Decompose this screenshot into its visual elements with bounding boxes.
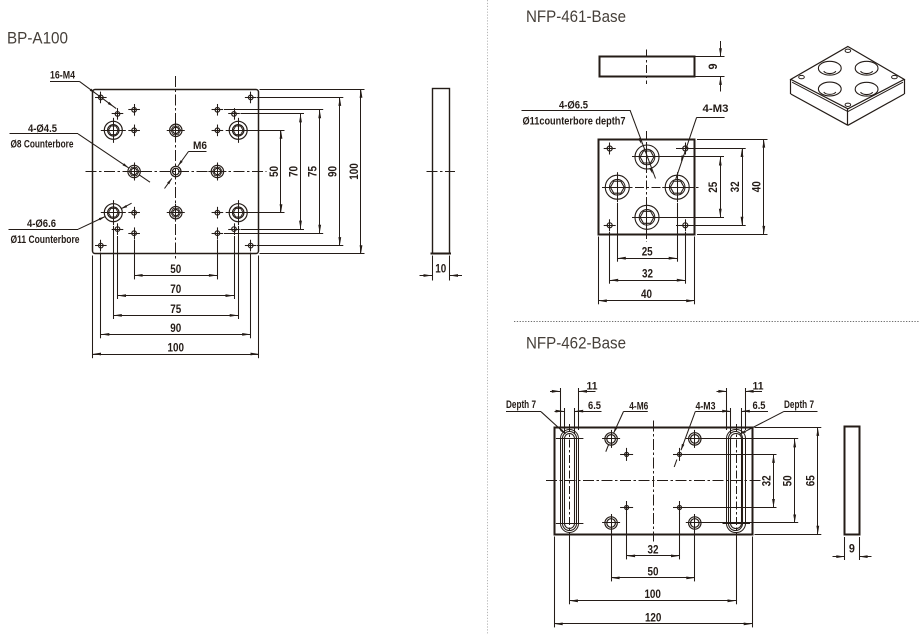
svg-text:70: 70 [286, 166, 300, 177]
svg-text:100: 100 [168, 340, 185, 354]
svg-text:6.5: 6.5 [588, 400, 601, 412]
svg-text:25: 25 [706, 182, 720, 193]
svg-text:11: 11 [753, 381, 764, 393]
svg-text:11: 11 [587, 381, 598, 393]
svg-text:BP-A100: BP-A100 [7, 30, 68, 48]
svg-text:32: 32 [642, 267, 653, 281]
svg-text:Ø11counterbore depth7: Ø11counterbore depth7 [523, 116, 626, 128]
svg-text:25: 25 [642, 245, 653, 259]
svg-text:10: 10 [435, 262, 446, 276]
svg-text:Ø8 Counterbore: Ø8 Counterbore [11, 139, 74, 151]
svg-text:120: 120 [645, 610, 662, 624]
svg-text:40: 40 [750, 181, 764, 192]
svg-text:32: 32 [728, 181, 742, 192]
svg-text:50: 50 [781, 475, 795, 486]
svg-text:100: 100 [644, 587, 661, 601]
svg-text:90: 90 [326, 166, 340, 177]
svg-text:Depth 7: Depth 7 [784, 399, 814, 411]
svg-text:65: 65 [804, 475, 818, 486]
svg-text:6.5: 6.5 [753, 400, 766, 412]
svg-text:16-M4: 16-M4 [50, 70, 76, 82]
svg-text:4-M3: 4-M3 [696, 400, 716, 412]
svg-text:32: 32 [759, 475, 773, 486]
svg-text:4-M6: 4-M6 [629, 400, 648, 412]
svg-text:9: 9 [706, 63, 720, 69]
svg-text:Depth 7: Depth 7 [506, 399, 536, 411]
svg-text:50: 50 [267, 166, 281, 177]
svg-text:NFP-461-Base: NFP-461-Base [526, 8, 626, 26]
svg-text:M6: M6 [193, 140, 207, 152]
svg-text:100: 100 [347, 163, 361, 180]
svg-text:75: 75 [306, 166, 320, 177]
svg-text:50: 50 [648, 564, 659, 578]
svg-text:40: 40 [641, 287, 652, 301]
svg-text:9: 9 [849, 542, 855, 556]
svg-text:70: 70 [170, 282, 181, 296]
svg-text:4-Ø6.6: 4-Ø6.6 [27, 218, 56, 230]
svg-text:NFP-462-Base: NFP-462-Base [526, 335, 626, 353]
svg-text:4-M3: 4-M3 [703, 103, 729, 115]
svg-text:4-Ø6.5: 4-Ø6.5 [559, 99, 588, 111]
svg-text:Ø11 Counterbore: Ø11 Counterbore [11, 234, 80, 246]
svg-text:32: 32 [648, 542, 659, 556]
svg-text:75: 75 [170, 302, 181, 316]
svg-text:50: 50 [170, 262, 181, 276]
svg-text:90: 90 [170, 321, 181, 335]
